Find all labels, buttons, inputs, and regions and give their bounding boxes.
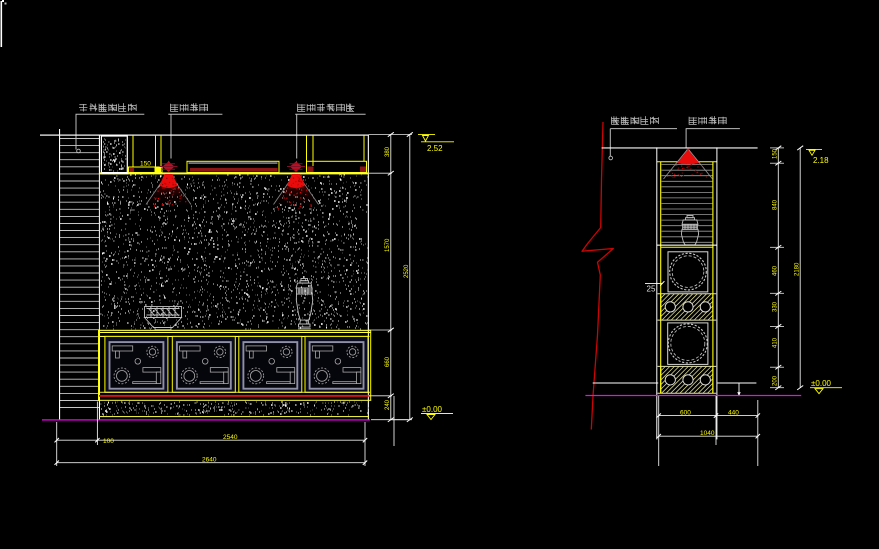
svg-text:1040: 1040 — [700, 430, 715, 437]
svg-text:410: 410 — [773, 337, 779, 348]
svg-text:240: 240 — [385, 399, 391, 410]
svg-text:2540: 2540 — [223, 434, 238, 441]
svg-text:600: 600 — [680, 409, 691, 416]
svg-text:±0.00: ±0.00 — [811, 379, 832, 388]
svg-text:2640: 2640 — [202, 456, 217, 463]
svg-text:25: 25 — [647, 285, 656, 294]
svg-text:460: 460 — [773, 265, 779, 276]
svg-text:380: 380 — [385, 146, 391, 157]
svg-text:440: 440 — [728, 409, 739, 416]
svg-text:200: 200 — [773, 375, 779, 386]
svg-text:150: 150 — [140, 161, 151, 168]
svg-text:660: 660 — [385, 356, 391, 367]
svg-text:330: 330 — [773, 301, 779, 312]
svg-text:100: 100 — [103, 438, 114, 445]
svg-text:±0.00: ±0.00 — [422, 405, 443, 414]
svg-text:1570: 1570 — [385, 238, 391, 252]
svg-text:2520: 2520 — [404, 264, 410, 278]
svg-text:2.18: 2.18 — [813, 156, 829, 165]
svg-text:150: 150 — [773, 148, 779, 159]
svg-text:2180: 2180 — [795, 262, 801, 276]
svg-text:2.52: 2.52 — [427, 144, 443, 153]
svg-text:840: 840 — [773, 199, 779, 210]
